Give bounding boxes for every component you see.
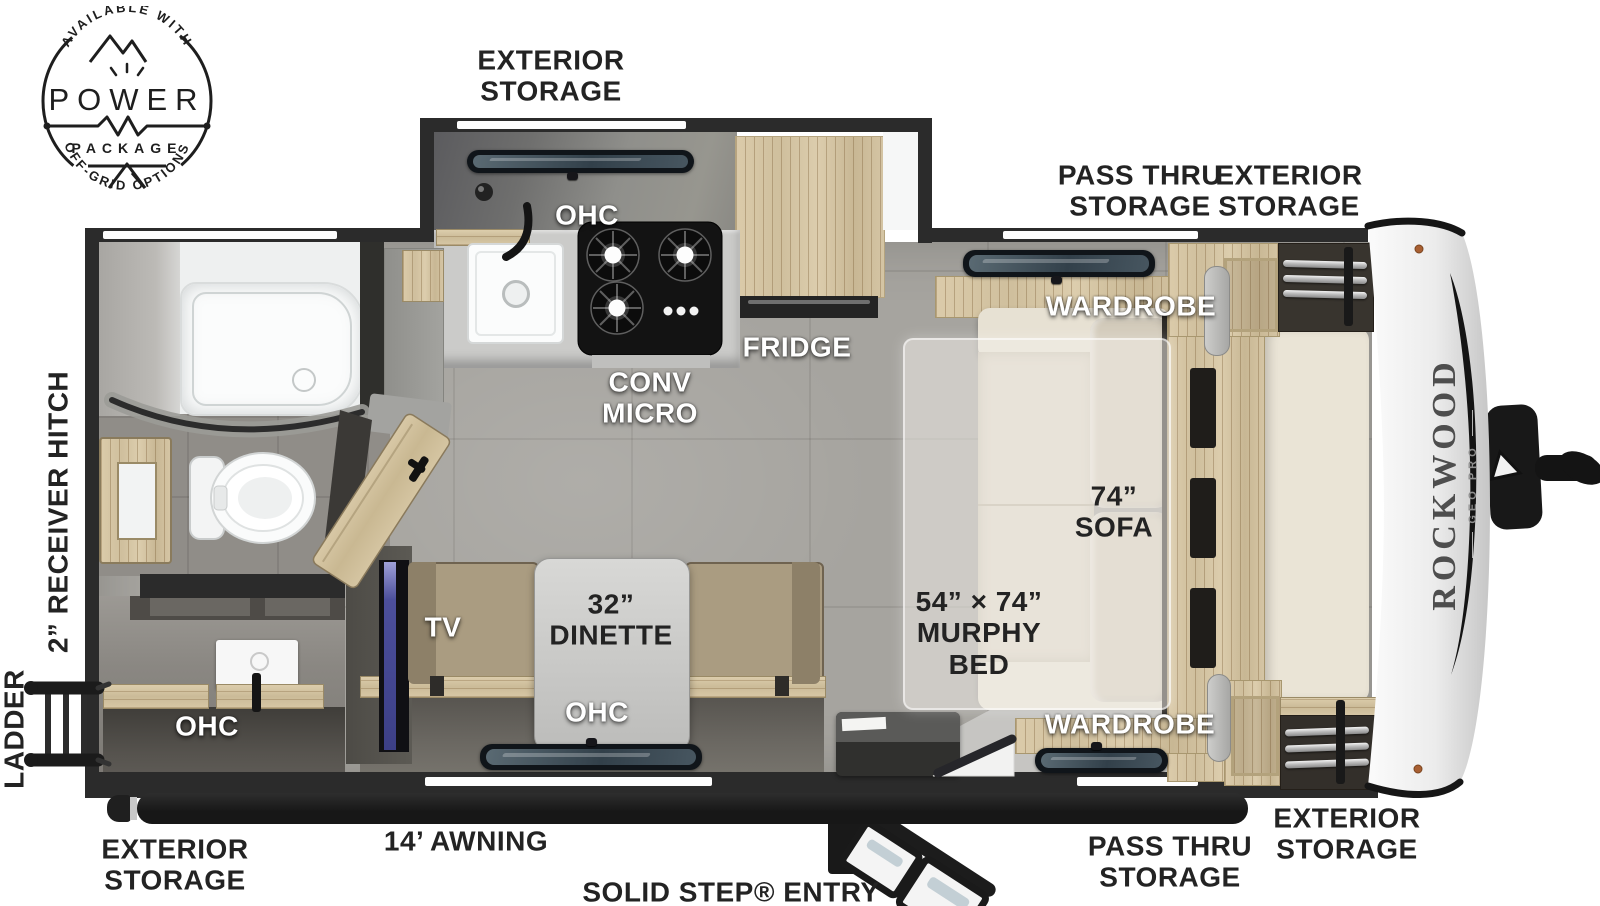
clearance-light-bottom [1414, 765, 1422, 773]
label-dinette: 32” DINETTE [549, 589, 672, 652]
front-cap [1330, 205, 1600, 817]
label-murphy-bed: 54” × 74” MURPHY BED [916, 586, 1043, 680]
stove-knobs [664, 307, 699, 316]
shower-door-arc [112, 400, 362, 429]
label-exterior-storage-bottom-left: EXTERIOR STORAGE [101, 834, 248, 897]
label-receiver-hitch: 2” RECEIVER HITCH [42, 371, 73, 653]
badge-word2: PACKAGE [72, 140, 183, 156]
entry-door-swing [933, 737, 1014, 776]
label-ohc-dinette: OHC [565, 696, 629, 727]
label-sofa: 74” SOFA [1075, 481, 1153, 544]
label-exterior-storage-bottom-right: EXTERIOR STORAGE [1273, 803, 1420, 866]
kitchen-faucet [475, 183, 528, 257]
power-package-badge: AVAILABLE WITH POWER PACKAGE OFF-GRID OP… [30, 6, 226, 202]
badge-arc-top-text: AVAILABLE WITH [58, 6, 196, 49]
burner-1 [587, 229, 639, 281]
floorplan-canvas: AVAILABLE WITH POWER PACKAGE OFF-GRID OP… [0, 0, 1600, 906]
label-solid-step-entry: SOLID STEP® ENTRY [582, 876, 879, 906]
sun-rays-icon [111, 64, 143, 75]
label-exterior-storage-top: EXTERIOR STORAGE [477, 45, 624, 108]
label-conv-micro: CONV MICRO [602, 367, 698, 430]
label-pass-thru-bottom: PASS THRU STORAGE [1088, 831, 1252, 894]
awning-tube-cap [107, 795, 131, 822]
zigzag-divider [50, 117, 204, 135]
stove [578, 222, 722, 368]
burner-2 [659, 229, 711, 281]
mountains-icon [90, 36, 146, 62]
awning-hinge [130, 797, 137, 820]
toilet [190, 453, 315, 543]
label-awning: 14’ AWNING [384, 825, 548, 856]
label-wardrobe-bottom: WARDROBE [1045, 708, 1215, 739]
label-fridge: FRIDGE [743, 331, 852, 362]
soap-dispenser [475, 183, 493, 201]
clearance-light-top [1415, 245, 1423, 253]
rear-ladder [20, 665, 120, 785]
label-pass-thru-top: PASS THRU STORAGE [1058, 160, 1222, 223]
label-tv: TV [425, 611, 462, 642]
label-exterior-storage-top-right: EXTERIOR STORAGE [1215, 160, 1362, 223]
burner-3 [591, 282, 643, 334]
label-ohc-rear: OHC [175, 710, 239, 741]
label-ladder: LADDER [0, 669, 30, 789]
svg-text:AVAILABLE WITH: AVAILABLE WITH [58, 6, 196, 49]
awning-tube [137, 793, 1248, 824]
label-ohc-kitchen: OHC [555, 199, 619, 230]
label-wardrobe-top: WARDROBE [1046, 290, 1216, 321]
hitch-assembly [1485, 404, 1600, 531]
badge-word: POWER [48, 82, 205, 117]
